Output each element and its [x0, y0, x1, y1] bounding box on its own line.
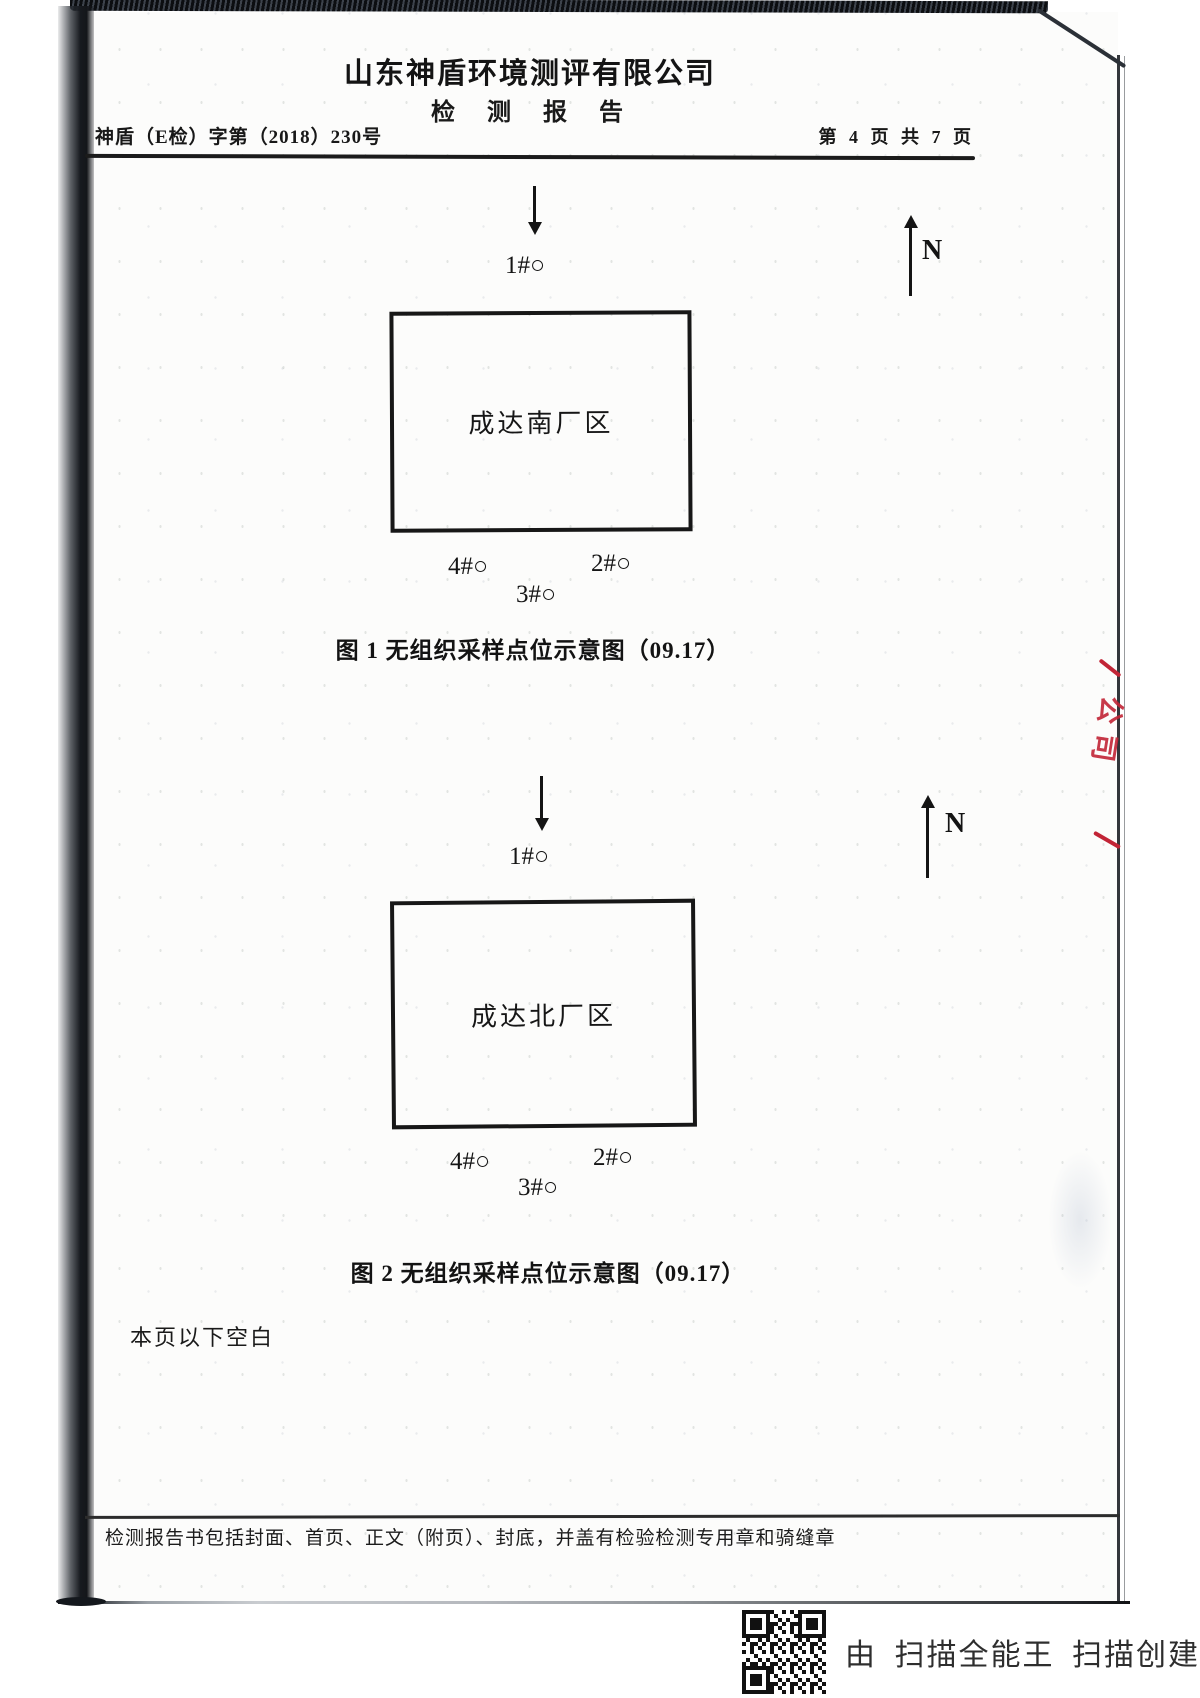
- figure-caption: 图 2 无组织采样点位示意图（09.17）: [348, 1254, 748, 1288]
- north-arrow-icon: [909, 220, 912, 296]
- report-number: 神盾（E检）字第（2018）230号: [95, 122, 382, 149]
- sampling-point-4: 4#○: [448, 553, 488, 581]
- company-name: 山东神盾环境测评有限公司: [85, 50, 975, 92]
- blank-note: 本页以下空白: [130, 1320, 274, 1352]
- scan-edge-left: [58, 6, 94, 1602]
- north-arrow-icon: [926, 800, 929, 878]
- sampling-point-1: 1#○: [505, 252, 545, 280]
- scanned-page: 山东神盾环境测评有限公司 检 测 报 告 神盾（E检）字第（2018）230号 …: [0, 0, 1200, 1698]
- scan-edge-bottom: [58, 1601, 1130, 1604]
- scan-smudge: [1048, 1150, 1112, 1290]
- north-label: N: [945, 808, 965, 840]
- sampling-point-4: 4#○: [450, 1148, 490, 1176]
- paper-background: [92, 12, 1118, 1602]
- site-boundary-box: 成达北厂区: [390, 899, 697, 1130]
- scanner-credit: 由 扫描全能王 扫描创建: [845, 1630, 1200, 1674]
- scan-edge-bottom-blob: [56, 1597, 106, 1606]
- sampling-point-2: 2#○: [593, 1144, 633, 1172]
- qr-code: [742, 1610, 826, 1694]
- wind-direction-arrow-icon: [540, 776, 543, 826]
- header-row: 神盾（E检）字第（2018）230号 第 4 页 共 7 页: [95, 122, 975, 149]
- north-label: N: [922, 235, 942, 267]
- sampling-point-3: 3#○: [518, 1174, 558, 1202]
- sampling-point-1: 1#○: [509, 843, 549, 871]
- sampling-point-3: 3#○: [516, 581, 556, 609]
- site-boundary-box: 成达南厂区: [389, 310, 692, 533]
- scan-edge-right: [1117, 55, 1120, 1603]
- page-number: 第 4 页 共 7 页: [819, 123, 976, 149]
- wind-direction-arrow-icon: [533, 186, 536, 230]
- footer-note: 检测报告书包括封面、首页、正文（附页）、封底，并盖有检验检测专用章和骑缝章: [105, 1523, 836, 1550]
- figure-caption: 图 1 无组织采样点位示意图（09.17）: [333, 631, 733, 665]
- site-name: 成达北厂区: [471, 995, 616, 1033]
- site-name: 成达南厂区: [468, 403, 613, 441]
- sampling-point-2: 2#○: [591, 550, 631, 578]
